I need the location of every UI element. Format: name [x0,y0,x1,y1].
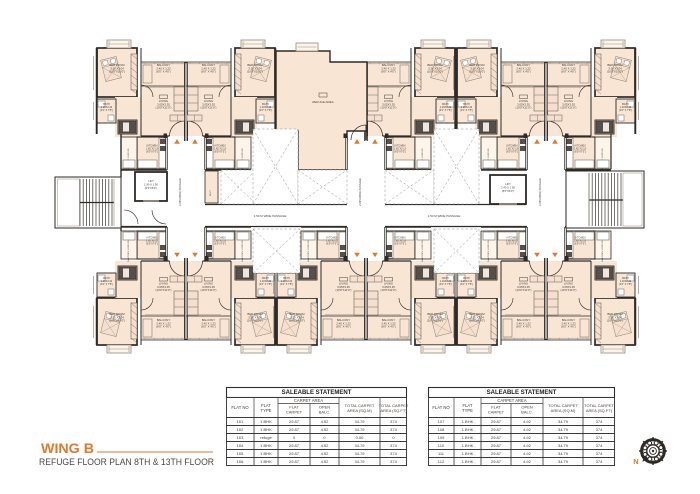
svg-text:1.50 M WIDE PASSAGE: 1.50 M WIDE PASSAGE [254,214,287,218]
svg-text:4.92: 4.92 [523,451,532,456]
svg-text:BALCONY 1.03X3.05: BALCONY 1.03X3.05 [241,240,244,262]
svg-text:(10'0"X11'0"): (10'0"X11'0") [381,106,397,110]
svg-text:(10'0"X11'0"): (10'0"X11'0") [381,288,397,292]
svg-text:(8'0" X 4'0"): (8'0" X 4'0") [561,70,576,74]
svg-text:(8'0"X6'3"): (8'0"X6'3") [502,189,515,193]
svg-text:29.87: 29.87 [491,451,502,456]
svg-text:(10'0"X11'0"): (10'0"X11'0") [156,288,172,292]
svg-text:29.87: 29.87 [491,435,502,440]
svg-text:4.92: 4.92 [523,443,532,448]
svg-text:(6'0"X7'0"): (6'0"X7'0") [506,151,518,154]
svg-text:(10'0"X11'0"): (10'0"X11'0") [201,106,217,110]
svg-text:374: 374 [596,427,603,432]
svg-text:(6'0"X7'0"): (6'0"X7'0") [326,243,338,246]
svg-text:34.79: 34.79 [558,443,569,448]
svg-text:AREA (SQ.M): AREA (SQ.M) [347,408,372,413]
svg-text:2.06M WIDE PASSAGE: 2.06M WIDE PASSAGE [538,178,542,206]
svg-text:34.79: 34.79 [354,451,365,456]
svg-text:(8'0" X 4'0"): (8'0" X 4'0") [156,325,171,329]
svg-text:(6'0"X7'0"): (6'0"X7'0") [506,243,518,246]
svg-text:29.87: 29.87 [289,419,300,424]
svg-text:374: 374 [596,435,603,440]
svg-text:4.92: 4.92 [321,443,330,448]
svg-text:(6'3"X6'3"): (6'3"X6'3") [145,186,158,190]
svg-text:(4'2" X 7'8"): (4'2" X 7'8") [619,283,632,286]
svg-text:SALEABLE STATEMENT: SALEABLE STATEMENT [282,390,352,396]
svg-text:(10'0"X11'0"): (10'0"X11'0") [561,288,577,292]
svg-text:1 BHK: 1 BHK [462,435,474,440]
svg-text:1 BHK: 1 BHK [462,451,474,456]
svg-text:4.92: 4.92 [321,427,330,432]
svg-text:FLAT NO: FLAT NO [432,405,450,410]
svg-text:(4'2" X 7'8"): (4'2" X 7'8") [100,109,113,112]
svg-text:110: 110 [438,443,445,448]
svg-text:29.87: 29.87 [491,419,502,424]
svg-text:(6'0"X7'0"): (6'0"X7'0") [394,243,406,246]
svg-text:(8'0" X 4'0"): (8'0" X 4'0") [381,70,396,74]
svg-text:BALCONY 1.03X3.05: BALCONY 1.03X3.05 [127,240,130,262]
svg-text:(4'2" X 7'8"): (4'2" X 7'8") [100,283,113,286]
svg-text:1.90 X 1.90: 1.90 X 1.90 [144,182,158,186]
svg-text:BALCONY 1.03X3.05: BALCONY 1.03X3.05 [307,240,310,262]
svg-text:CARPET AREA: CARPET AREA [294,398,323,403]
svg-text:TYPE: TYPE [462,408,473,413]
svg-text:CARPET AREA: CARPET AREA [497,398,526,403]
svg-text:374: 374 [390,451,397,456]
svg-text:(6'0"X7'0"): (6'0"X7'0") [394,151,406,154]
svg-text:103: 103 [237,435,244,440]
svg-text:34.79: 34.79 [558,427,569,432]
svg-text:(10'6"X10'0"): (10'6"X10'0") [289,319,305,323]
svg-text:1 BHK: 1 BHK [462,427,474,432]
svg-text:34.79: 34.79 [558,419,569,424]
svg-text:SALEABLE STATEMENT: SALEABLE STATEMENT [487,390,557,396]
svg-text:(4'2" X 7'8"): (4'2" X 7'8") [439,109,452,112]
svg-text:34.79: 34.79 [354,443,365,448]
svg-text:CARPET: CARPET [488,410,505,415]
svg-text:FLAT NO: FLAT NO [231,405,249,410]
svg-text:CARPET: CARPET [286,410,303,415]
svg-text:111: 111 [438,451,445,456]
svg-text:(10'6"X10'0"): (10'6"X10'0") [607,319,623,323]
svg-text:(4'2" X 7'8"): (4'2" X 7'8") [259,109,272,112]
svg-text:(10'6"X10'0"): (10'6"X10'0") [109,70,125,74]
svg-text:34.79: 34.79 [354,419,365,424]
svg-text:(4'2" X 7'8"): (4'2" X 7'8") [259,283,272,286]
svg-text:DUCT: DUCT [210,189,212,196]
svg-text:(8'0" X 4'0"): (8'0" X 4'0") [201,70,216,74]
svg-text:BALC.: BALC. [319,410,331,415]
svg-text:AREA (SQ.FT): AREA (SQ.FT) [380,408,407,413]
svg-text:WING B: WING B [41,440,94,456]
svg-text:(10'6"X10'0"): (10'6"X10'0") [109,319,125,323]
svg-text:374: 374 [596,419,603,424]
svg-text:4.92: 4.92 [523,419,532,424]
svg-text:(4'2" X 7'8"): (4'2" X 7'8") [439,283,452,286]
svg-text:101: 101 [237,419,244,424]
svg-text:374: 374 [390,419,397,424]
svg-text:2.06M WIDE PASSAGE: 2.06M WIDE PASSAGE [358,178,362,206]
svg-text:1 BHK: 1 BHK [260,451,272,456]
svg-text:29.87: 29.87 [289,443,300,448]
svg-text:(4'2" X 7'8"): (4'2" X 7'8") [619,109,632,112]
svg-text:(10'0"X11'0"): (10'0"X11'0") [516,288,532,292]
svg-text:(10'6"X10'0"): (10'6"X10'0") [427,70,443,74]
svg-text:(6'0"X7'0"): (6'0"X7'0") [574,151,586,154]
svg-text:4.92: 4.92 [523,459,532,464]
svg-text:1 BHK: 1 BHK [260,459,272,464]
svg-text:(10'6"X10'0"): (10'6"X10'0") [607,70,623,74]
svg-text:(8'0" X 4'0"): (8'0" X 4'0") [381,325,396,329]
svg-text:1 BHK: 1 BHK [260,443,272,448]
svg-text:105: 105 [237,451,244,456]
svg-text:(10'6"X10'0"): (10'6"X10'0") [247,70,263,74]
svg-text:(10'6"X10'0"): (10'6"X10'0") [247,319,263,323]
svg-text:34.79: 34.79 [354,459,365,464]
svg-text:4.92: 4.92 [523,427,532,432]
svg-text:(8'0" X 4'0"): (8'0" X 4'0") [561,325,576,329]
svg-text:34.79: 34.79 [558,459,569,464]
svg-text:4.92: 4.92 [523,435,532,440]
svg-text:refuge: refuge [260,435,272,440]
svg-text:29.87: 29.87 [491,459,502,464]
svg-text:(8'0" X 4'0"): (8'0" X 4'0") [336,325,351,329]
svg-text:(10'0"X11'0"): (10'0"X11'0") [336,288,352,292]
svg-text:BALCONY 1.03X3.05: BALCONY 1.03X3.05 [487,240,490,262]
svg-text:(10'6"X10'0"): (10'6"X10'0") [469,319,485,323]
svg-text:108: 108 [438,427,445,432]
svg-text:34.79: 34.79 [354,427,365,432]
svg-text:374: 374 [596,443,603,448]
svg-text:AREA (SQ.M): AREA (SQ.M) [551,408,576,413]
svg-text:4.92: 4.92 [321,451,330,456]
svg-text:1 BHK: 1 BHK [462,443,474,448]
svg-text:(8'0" X 4'0"): (8'0" X 4'0") [516,325,531,329]
svg-text:AREA (SQ.FT): AREA (SQ.FT) [586,408,613,413]
svg-text:(6'0"X7'0"): (6'0"X7'0") [146,243,158,246]
svg-text:1 BHK: 1 BHK [260,427,272,432]
svg-text:106: 106 [237,459,244,464]
svg-text:0.00: 0.00 [356,435,365,440]
svg-text:374: 374 [596,451,603,456]
svg-text:(10'0"X11'0"): (10'0"X11'0") [156,106,172,110]
svg-text:(10'0"X11'0"): (10'0"X11'0") [516,106,532,110]
svg-text:34.79: 34.79 [558,435,569,440]
svg-text:(10'6"X10'0"): (10'6"X10'0") [427,319,443,323]
svg-text:29.87: 29.87 [491,443,502,448]
svg-text:N: N [633,457,638,466]
svg-text:BALCONY 1.03X3.05: BALCONY 1.03X3.05 [601,240,604,262]
svg-text:102: 102 [237,427,244,432]
svg-text:109: 109 [438,435,445,440]
svg-text:1.50 M WIDE PASSAGE: 1.50 M WIDE PASSAGE [428,214,461,218]
svg-text:(6'0"X7'0"): (6'0"X7'0") [214,151,226,154]
svg-text:(4'2" X 7'8"): (4'2" X 7'8") [280,283,293,286]
svg-text:29.87: 29.87 [289,427,300,432]
svg-text:4.92: 4.92 [321,419,330,424]
svg-text:34.79: 34.79 [558,451,569,456]
svg-text:112: 112 [438,459,445,464]
svg-text:(8'0" X 4'0"): (8'0" X 4'0") [201,325,216,329]
svg-text:2.06M WIDE PASSAGE: 2.06M WIDE PASSAGE [178,178,182,206]
svg-text:374: 374 [390,427,397,432]
svg-text:1 BHK: 1 BHK [462,419,474,424]
svg-text:4.92: 4.92 [321,459,330,464]
svg-text:374: 374 [390,459,397,464]
svg-text:LIFT: LIFT [148,179,154,183]
svg-text:BALC.: BALC. [521,410,533,415]
svg-text:29.87: 29.87 [491,427,502,432]
svg-text:29.87: 29.87 [289,451,300,456]
svg-text:2.40 X 1.90: 2.40 X 1.90 [501,185,515,189]
svg-text:(10'6"X10'0"): (10'6"X10'0") [469,70,485,74]
svg-text:REFUGE AREA: REFUGE AREA [312,100,333,104]
svg-text:(10'0"X11'0"): (10'0"X11'0") [561,106,577,110]
svg-text:LIFT: LIFT [505,182,511,186]
svg-text:(8'0" X 4'0"): (8'0" X 4'0") [156,70,171,74]
svg-text:104: 104 [237,443,244,448]
svg-text:(6'0"X7'0"): (6'0"X7'0") [574,243,586,246]
svg-text:REFUGE FLOOR PLAN 8TH & 13TH F: REFUGE FLOOR PLAN 8TH & 13TH FLOOR [39,457,214,468]
svg-text:374: 374 [390,443,397,448]
svg-text:107: 107 [438,419,445,424]
svg-text:(10'0"X11'0"): (10'0"X11'0") [201,288,217,292]
svg-text:TYPE: TYPE [261,408,272,413]
svg-text:374: 374 [596,459,603,464]
svg-text:(8'0" X 4'0"): (8'0" X 4'0") [516,70,531,74]
svg-text:29.87: 29.87 [289,459,300,464]
svg-text:(4'2" X 7'8"): (4'2" X 7'8") [460,109,473,112]
svg-text:(4'2" X 7'8"): (4'2" X 7'8") [460,283,473,286]
svg-text:(6'0"X7'0"): (6'0"X7'0") [146,151,158,154]
svg-text:(6'0"X7'0"): (6'0"X7'0") [214,243,226,246]
svg-text:1 BHK: 1 BHK [260,419,272,424]
svg-text:1 BHK: 1 BHK [462,459,474,464]
svg-text:BALCONY 1.03X3.05: BALCONY 1.03X3.05 [421,240,424,262]
